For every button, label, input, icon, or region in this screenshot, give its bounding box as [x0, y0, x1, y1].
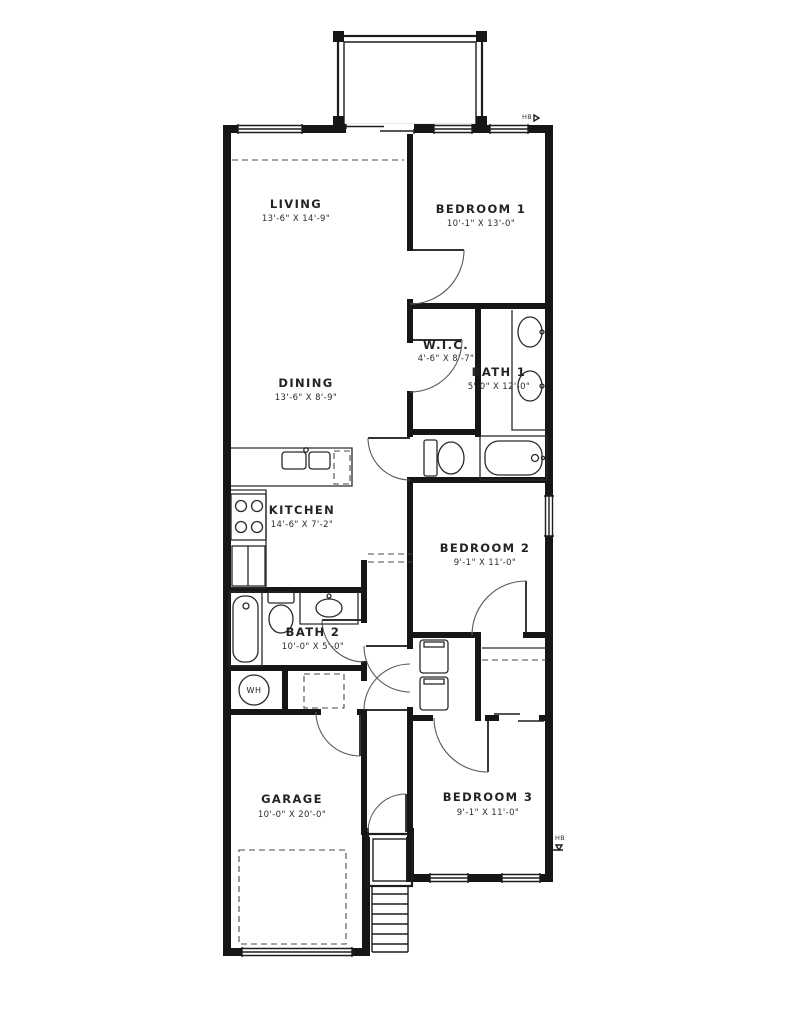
room-label-bedroom2: BEDROOM 2 9'-1" X 11'-0" [440, 541, 531, 568]
garage-door [242, 947, 352, 957]
window [502, 873, 540, 883]
dishwasher [334, 451, 350, 484]
svg-text:BEDROOM 3: BEDROOM 3 [443, 790, 534, 804]
water-heater-label: WH [247, 686, 262, 695]
porch [333, 31, 487, 127]
room-label-wic: W.I.C. 4'-6" X 8'-7" [418, 338, 475, 364]
room-label-bath2: BATH 2 10'-0" X 5'-0" [282, 625, 345, 652]
faucet [327, 594, 331, 598]
room-label-bath1: BATH 1 5'-0" X 12'-0" [468, 365, 531, 392]
svg-text:4'-6" X 8'-7": 4'-6" X 8'-7" [418, 354, 475, 364]
attic-access [304, 674, 344, 708]
hose-bib-label: HB [522, 113, 532, 121]
dashed-details [232, 160, 404, 944]
room-label-living: LIVING 13'-6" X 14'-9" [262, 197, 330, 224]
bedroom3-door [434, 718, 488, 772]
dryer [420, 677, 448, 710]
svg-text:9'-1" X 11'-0": 9'-1" X 11'-0" [457, 808, 520, 818]
svg-text:BEDROOM 1: BEDROOM 1 [436, 202, 527, 216]
kitchen-left-counter [231, 490, 266, 588]
window [544, 496, 554, 536]
range [231, 494, 266, 540]
bath2-bathtub [229, 592, 262, 666]
garage-entry-door [316, 712, 360, 756]
room-label-kitchen: KITCHEN 14'-6" X 7'-2" [269, 503, 335, 530]
room-label-garage: GARAGE 10'-0" X 20'-0" [258, 792, 326, 820]
front-door [368, 794, 406, 832]
entry-steps [372, 886, 408, 952]
room-label-bedroom1: BEDROOM 1 10'-1" X 13'-0" [436, 202, 527, 229]
closet-slider [494, 714, 544, 721]
svg-text:14'-6" X 7'-2": 14'-6" X 7'-2" [271, 520, 334, 530]
svg-text:10'-0" X 20'-0": 10'-0" X 20'-0" [258, 810, 326, 820]
room-label-bedroom3: BEDROOM 3 9'-1" X 11'-0" [443, 790, 534, 818]
sliding-door [346, 124, 414, 134]
svg-text:LIVING: LIVING [270, 197, 322, 211]
svg-text:KITCHEN: KITCHEN [269, 503, 335, 517]
window [490, 124, 528, 134]
hose-bib-right: HB [553, 834, 565, 850]
kitchen-sink [309, 452, 330, 469]
room-label-dining: DINING 13'-6" X 8'-9" [275, 376, 338, 403]
bath2-sink [316, 599, 342, 617]
svg-text:10'-0" X 5'-0": 10'-0" X 5'-0" [282, 642, 345, 652]
porch-post [333, 31, 344, 42]
bath1-toilet [424, 440, 464, 476]
hose-bib-top: HB [522, 113, 539, 121]
entry-stoop [368, 834, 412, 952]
window [434, 124, 472, 134]
front-door-opening [369, 827, 407, 837]
water-heater: WH [239, 675, 269, 705]
window [238, 124, 302, 134]
bath1-sink [518, 317, 542, 347]
room-labels: LIVING 13'-6" X 14'-9" BEDROOM 1 10'-1" … [258, 197, 533, 820]
svg-text:13'-6" X 8'-9": 13'-6" X 8'-9" [275, 393, 338, 403]
bath1-bathtub [480, 436, 547, 480]
svg-text:BEDROOM 2: BEDROOM 2 [440, 541, 531, 555]
cased-opening [368, 554, 412, 562]
svg-text:DINING: DINING [278, 376, 333, 390]
parking-pad [239, 850, 346, 944]
floor-plan-drawing: WH HB [0, 0, 791, 1024]
svg-text:5'-0" X 12'-0": 5'-0" X 12'-0" [468, 382, 531, 392]
closet-shelf [482, 648, 546, 660]
porch-post [476, 31, 487, 42]
hose-bib-label: HB [555, 834, 565, 842]
laundry-bifold-doors [364, 646, 410, 710]
bedroom1-door [410, 250, 464, 304]
kitchen-sink [282, 452, 306, 469]
bedroom2-door [472, 581, 526, 635]
refrigerator [232, 546, 265, 586]
svg-text:10'-1" X 13'-0": 10'-1" X 13'-0" [447, 219, 515, 229]
bath1-door [368, 438, 410, 480]
window [430, 873, 468, 883]
svg-text:9'-1" X 11'-0": 9'-1" X 11'-0" [454, 558, 517, 568]
svg-text:GARAGE: GARAGE [261, 792, 323, 806]
svg-text:BATH 2: BATH 2 [286, 625, 341, 639]
kitchen-counter [231, 448, 352, 486]
svg-text:W.I.C.: W.I.C. [423, 338, 469, 352]
bath1-fixtures [424, 310, 547, 480]
laundry-closet [420, 640, 448, 710]
floor-plan-page: WH HB [0, 0, 791, 1024]
washer [420, 640, 448, 673]
svg-text:BATH 1: BATH 1 [472, 365, 527, 379]
svg-text:13'-6" X 14'-9": 13'-6" X 14'-9" [262, 214, 330, 224]
